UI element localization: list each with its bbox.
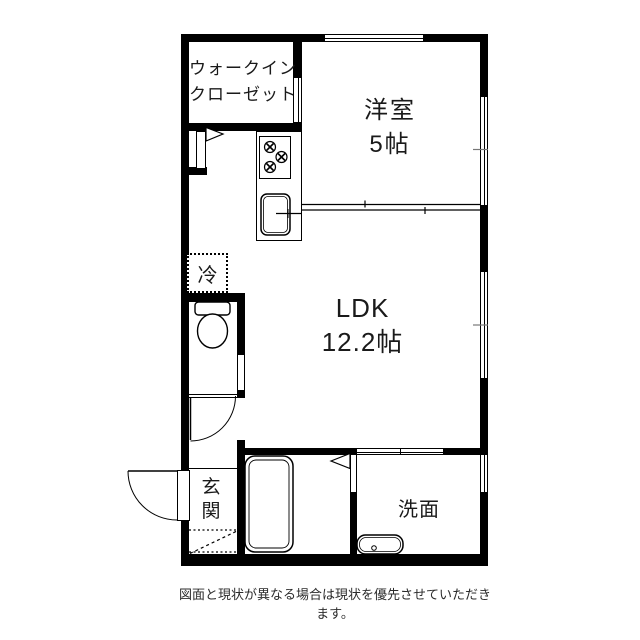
walkin-closet-label-line1: ウォークイン [189,56,293,82]
washbasin-icon [357,535,403,554]
window-tick-marks [473,150,488,326]
door-triangle-bath [331,454,350,469]
entrance-floor-dashes [189,530,237,554]
walkin-closet-label: ウォークイン クローゼット [189,56,293,108]
western-room-size: 5帖 [330,124,450,159]
door-triangle-closet [206,128,223,142]
stove-burners-icon [265,142,288,173]
toilet-icon [195,302,230,348]
ldk-size: 12.2帖 [280,322,445,359]
entrance-label-char2: 関 [197,500,225,524]
western-room-name: 洋室 [330,90,450,125]
walkin-closet-label-line2: クローゼット [189,82,293,108]
floor-plan: 冷 [0,0,640,640]
entrance-label-char1: 玄 [197,476,225,500]
disclaimer-text: 図面と現状が異なる場合は現状を優先させていただきます。 [175,584,495,622]
ldk-name: LDK [280,293,445,324]
sliding-partition [302,201,480,215]
hall-door-swing-arc [191,396,236,441]
washroom-label: 洗面 [380,493,458,522]
entrance-label: 玄 関 [197,476,225,524]
entrance-door-arc [128,471,177,520]
kitchen-sink-icon [261,194,302,235]
bathtub-icon [245,456,293,552]
